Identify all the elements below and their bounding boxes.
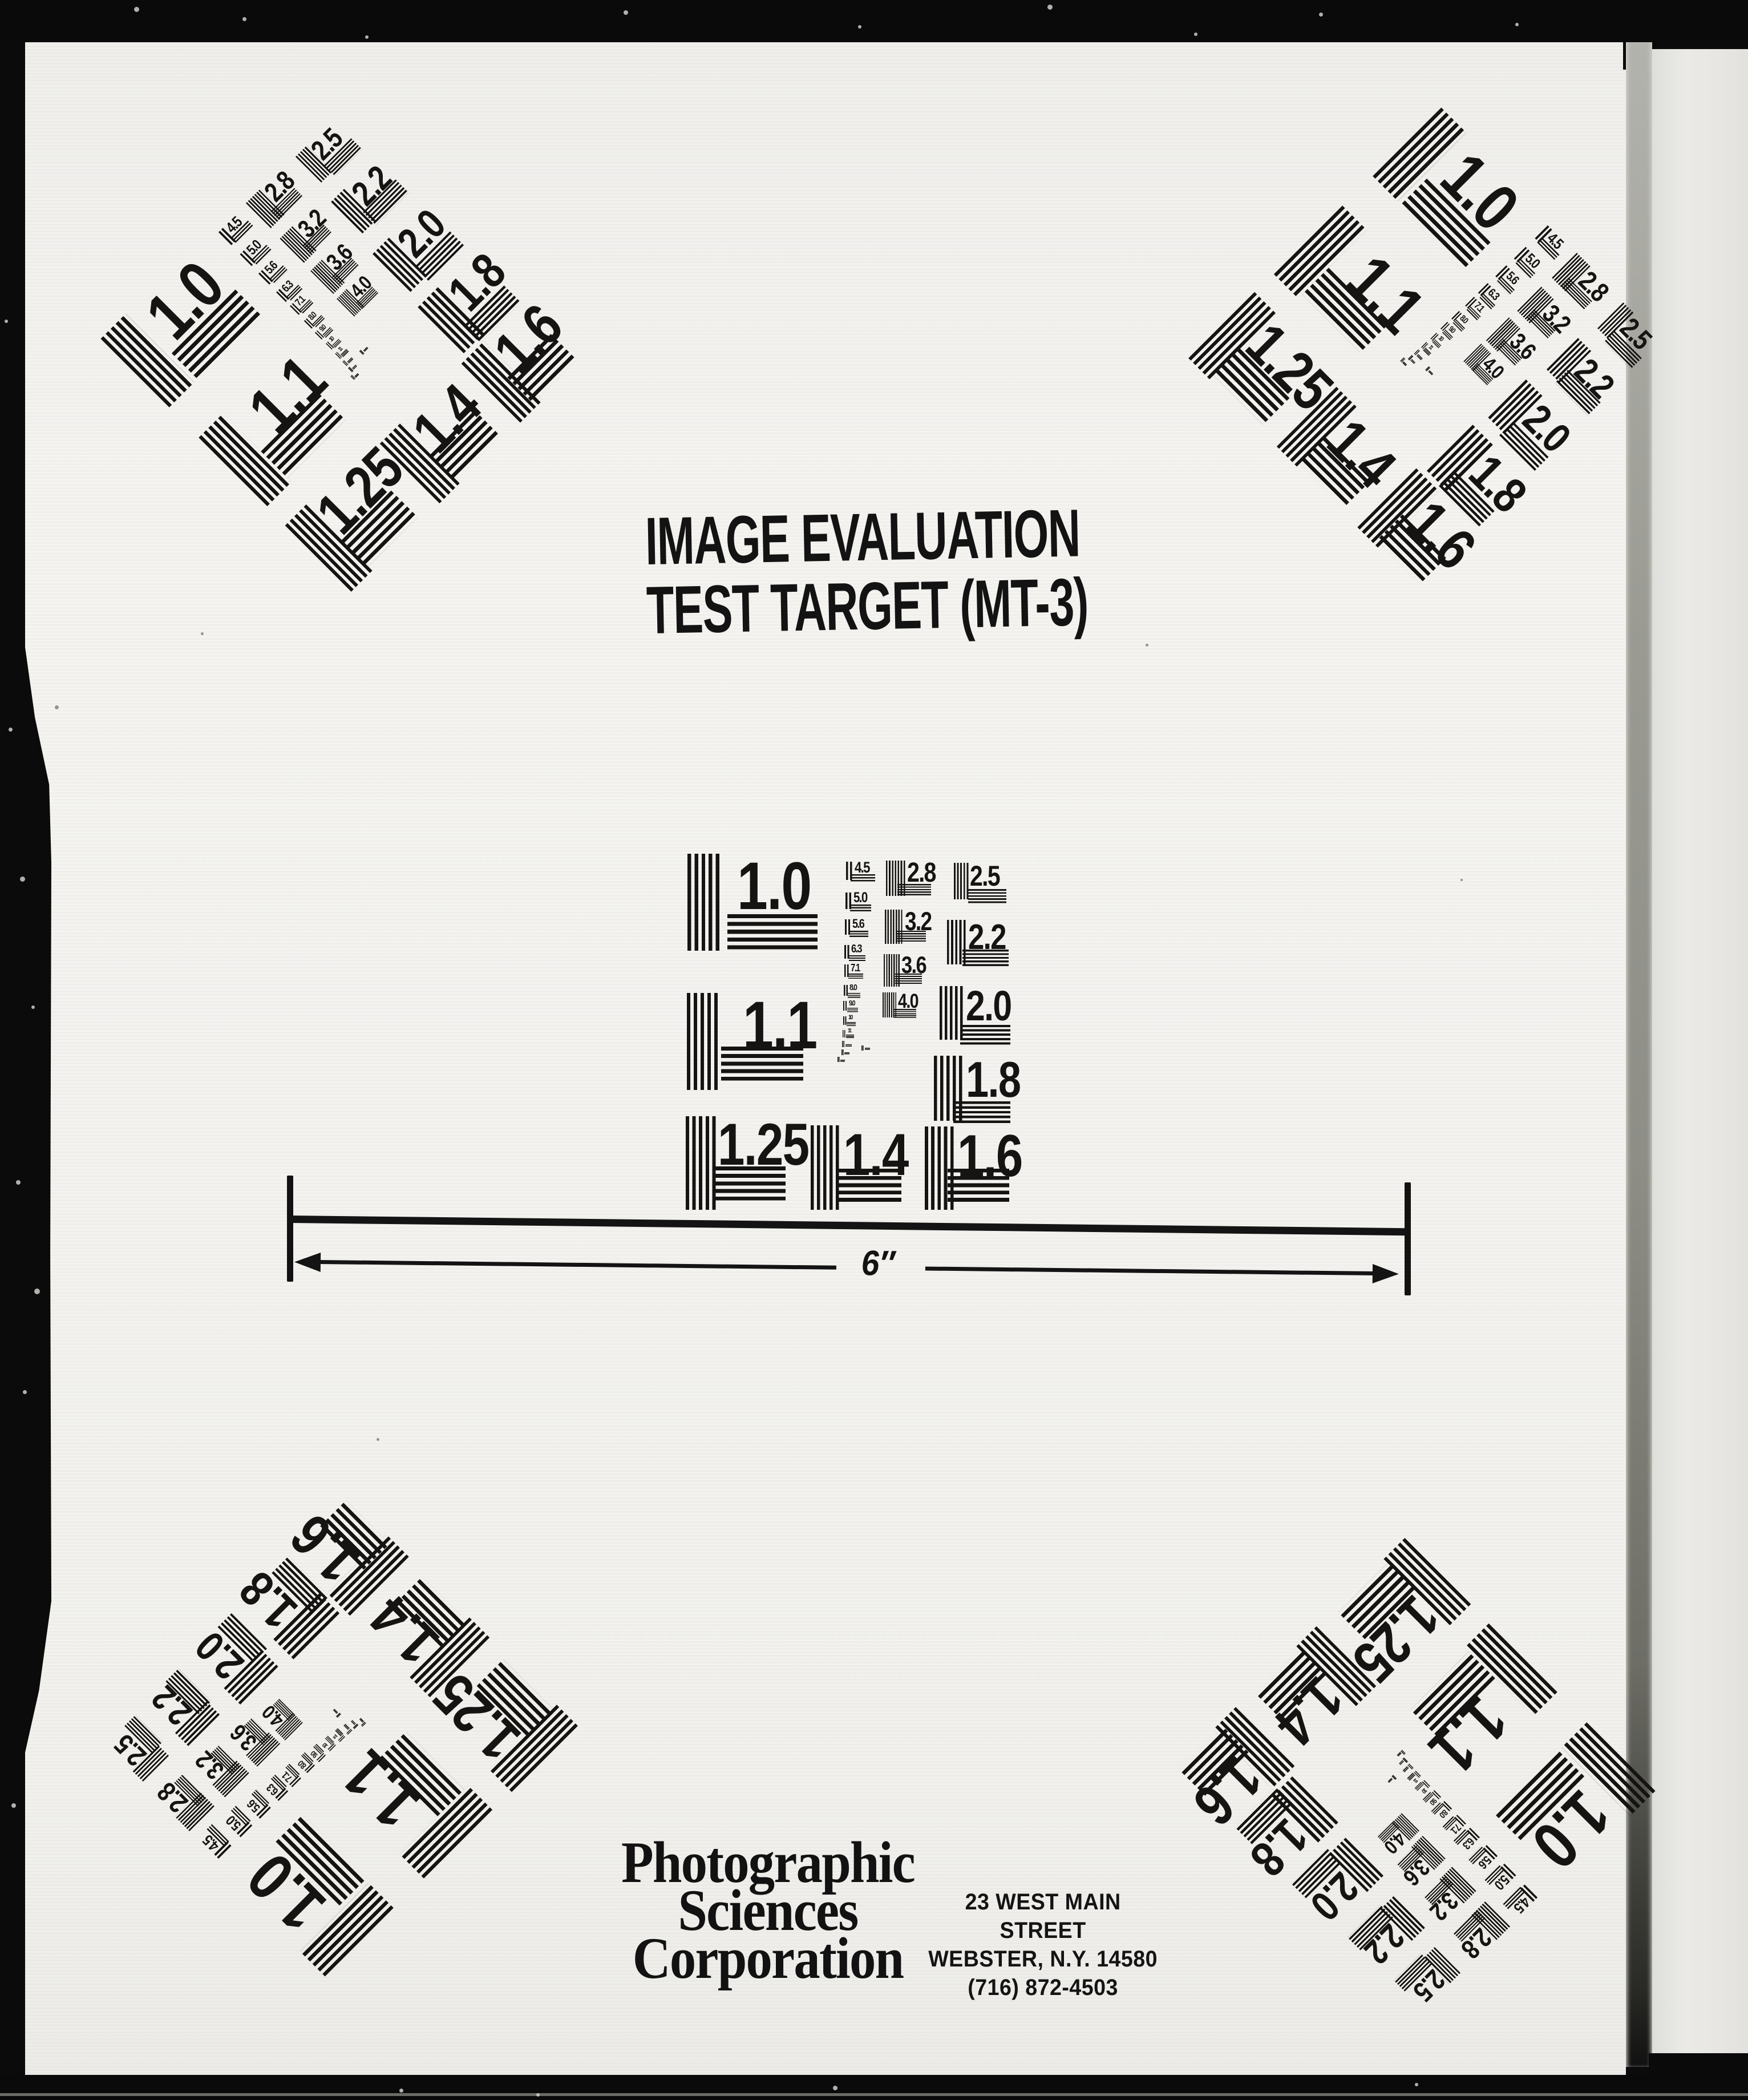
dust-speck xyxy=(1194,33,1197,36)
dust-speck xyxy=(1319,13,1323,17)
dust-speck xyxy=(9,728,13,732)
title-line-1: IMAGE EVALUATION xyxy=(645,499,1087,576)
dust-speck xyxy=(5,320,8,323)
resolution-label: 2.5 xyxy=(970,862,1000,890)
resolution-label: 5.6 xyxy=(852,918,864,930)
address-city: WEBSTER, N.Y. 14580 xyxy=(928,1945,1158,1973)
company-name-block: Photographic Sciences Corporation xyxy=(600,1839,936,1982)
micro-mark xyxy=(363,347,369,352)
bar-group-horizontal xyxy=(896,931,926,943)
bar-group-horizontal xyxy=(897,884,931,896)
micro-mark xyxy=(1397,1752,1401,1756)
dust-speck xyxy=(201,632,204,635)
bar-group-horizontal xyxy=(968,889,1006,904)
bar-group-horizontal xyxy=(849,955,865,962)
dust-speck xyxy=(1460,879,1463,881)
dust-speck xyxy=(377,1438,379,1441)
bar-group-horizontal xyxy=(847,1008,858,1013)
micro-mark xyxy=(844,1052,849,1055)
scanner-background-top xyxy=(0,0,1748,42)
scale-arrowhead-right-icon xyxy=(1373,1264,1399,1283)
bar-group-horizontal xyxy=(849,931,868,938)
bar-group-horizontal xyxy=(960,1025,1010,1047)
bar-group-horizontal xyxy=(948,1169,1009,1205)
dust-speck xyxy=(31,1005,35,1009)
scale-arrow-segment-right xyxy=(925,1266,1376,1275)
dust-speck xyxy=(624,10,628,15)
micro-mark xyxy=(842,1041,845,1047)
micro-mark xyxy=(845,1044,852,1047)
micro-mark xyxy=(354,373,359,378)
dust-speck xyxy=(55,705,59,709)
dust-speck xyxy=(536,2093,540,2097)
scan-edge-hairline xyxy=(0,2093,1748,2096)
resolution-label: 1.25 xyxy=(718,1115,808,1174)
scanner-background-left-edge xyxy=(24,639,51,1758)
micro-mark xyxy=(352,365,357,370)
bar-group-horizontal xyxy=(848,993,860,999)
dust-speck xyxy=(11,1803,16,1808)
scanned-test-target-page: IMAGE EVALUATION TEST TARGET (MT-3) 6″ P… xyxy=(0,0,1748,2100)
dust-speck xyxy=(23,1390,27,1394)
micro-mark xyxy=(1402,1766,1409,1772)
dust-speck xyxy=(20,877,25,882)
micro-mark xyxy=(1387,1778,1393,1783)
bar-group-horizontal xyxy=(837,1169,901,1205)
scale-arrowhead-left-icon xyxy=(294,1253,321,1272)
bar-group-horizontal xyxy=(846,1035,854,1039)
bar-group-horizontal xyxy=(850,904,871,912)
bar-group-vertical xyxy=(687,854,723,951)
dust-speck xyxy=(16,1180,21,1185)
micro-mark xyxy=(840,1060,845,1062)
resolution-label: 9.0 xyxy=(849,999,855,1007)
resolution-label: 4.5 xyxy=(855,860,869,875)
company-line-3: Corporation xyxy=(600,1935,936,1982)
bar-group-horizontal xyxy=(721,1047,803,1084)
resolution-label: 6.3 xyxy=(851,943,861,955)
micro-mark xyxy=(1401,1750,1406,1755)
title-block: IMAGE EVALUATION TEST TARGET (MT-3) xyxy=(645,495,1306,645)
resolution-label: 10 xyxy=(848,1015,852,1021)
company-address-block: 23 WEST MAIN STREET WEBSTER, N.Y. 14580 … xyxy=(928,1888,1158,2002)
bar-group-horizontal xyxy=(727,914,818,953)
resolution-label: 7.1 xyxy=(851,963,860,973)
scale-arrow-segment-left xyxy=(318,1260,836,1270)
address-street: 23 WEST MAIN STREET xyxy=(928,1888,1158,1945)
dust-speck xyxy=(242,17,246,21)
test-pattern-center: 1.01.11.251.41.61.82.02.22.52.83.23.64.0… xyxy=(673,845,1038,1210)
resolution-label: 1.0 xyxy=(737,853,811,920)
bar-group-horizontal xyxy=(847,1022,856,1027)
resolution-label: 1.8 xyxy=(966,1055,1020,1105)
resolution-label: 4.0 xyxy=(898,991,918,1011)
micro-mark xyxy=(865,1048,870,1050)
resolution-label: 11 xyxy=(848,1028,851,1034)
micro-mark xyxy=(1428,370,1433,375)
dust-speck xyxy=(1047,5,1053,10)
bar-group-horizontal xyxy=(893,1009,916,1019)
bar-group-horizontal xyxy=(953,1101,1010,1125)
micro-mark xyxy=(837,1057,840,1062)
dust-speck xyxy=(1515,23,1519,26)
address-phone: (716) 872-4503 xyxy=(928,1973,1158,2002)
dust-speck xyxy=(1146,644,1148,647)
bar-group-horizontal xyxy=(851,874,875,883)
dust-speck xyxy=(134,7,139,12)
resolution-label: 8.0 xyxy=(849,983,856,992)
resolution-label: 5.0 xyxy=(853,891,867,905)
micro-mark xyxy=(1410,359,1415,364)
dust-speck xyxy=(34,1289,40,1294)
dust-speck xyxy=(365,35,369,39)
bar-group-vertical xyxy=(954,863,970,899)
bar-group-horizontal xyxy=(895,974,922,985)
micro-mark xyxy=(861,1045,864,1051)
micro-mark xyxy=(841,1049,844,1055)
scale-length-label: 6″ xyxy=(859,1243,899,1284)
dust-speck xyxy=(858,25,861,29)
micro-mark xyxy=(347,357,353,364)
micro-mark xyxy=(1417,354,1423,360)
micro-mark xyxy=(333,1709,338,1714)
dust-speck xyxy=(399,2089,403,2093)
dust-speck xyxy=(1415,2083,1418,2086)
micro-mark xyxy=(1402,361,1407,366)
scanner-background-bottom xyxy=(0,2075,1748,2100)
bar-group-horizontal xyxy=(848,974,863,980)
title-line-2: TEST TARGET (MT-3) xyxy=(646,568,1089,645)
resolution-label: 2.8 xyxy=(907,859,936,887)
bar-group-horizontal xyxy=(715,1166,786,1204)
micro-mark xyxy=(1399,1760,1404,1765)
dust-speck xyxy=(833,2086,837,2090)
bar-group-horizontal xyxy=(962,950,1009,968)
resolution-label: 2.0 xyxy=(966,985,1011,1027)
bar-group-vertical xyxy=(686,1116,719,1210)
bar-group-vertical xyxy=(687,993,721,1090)
